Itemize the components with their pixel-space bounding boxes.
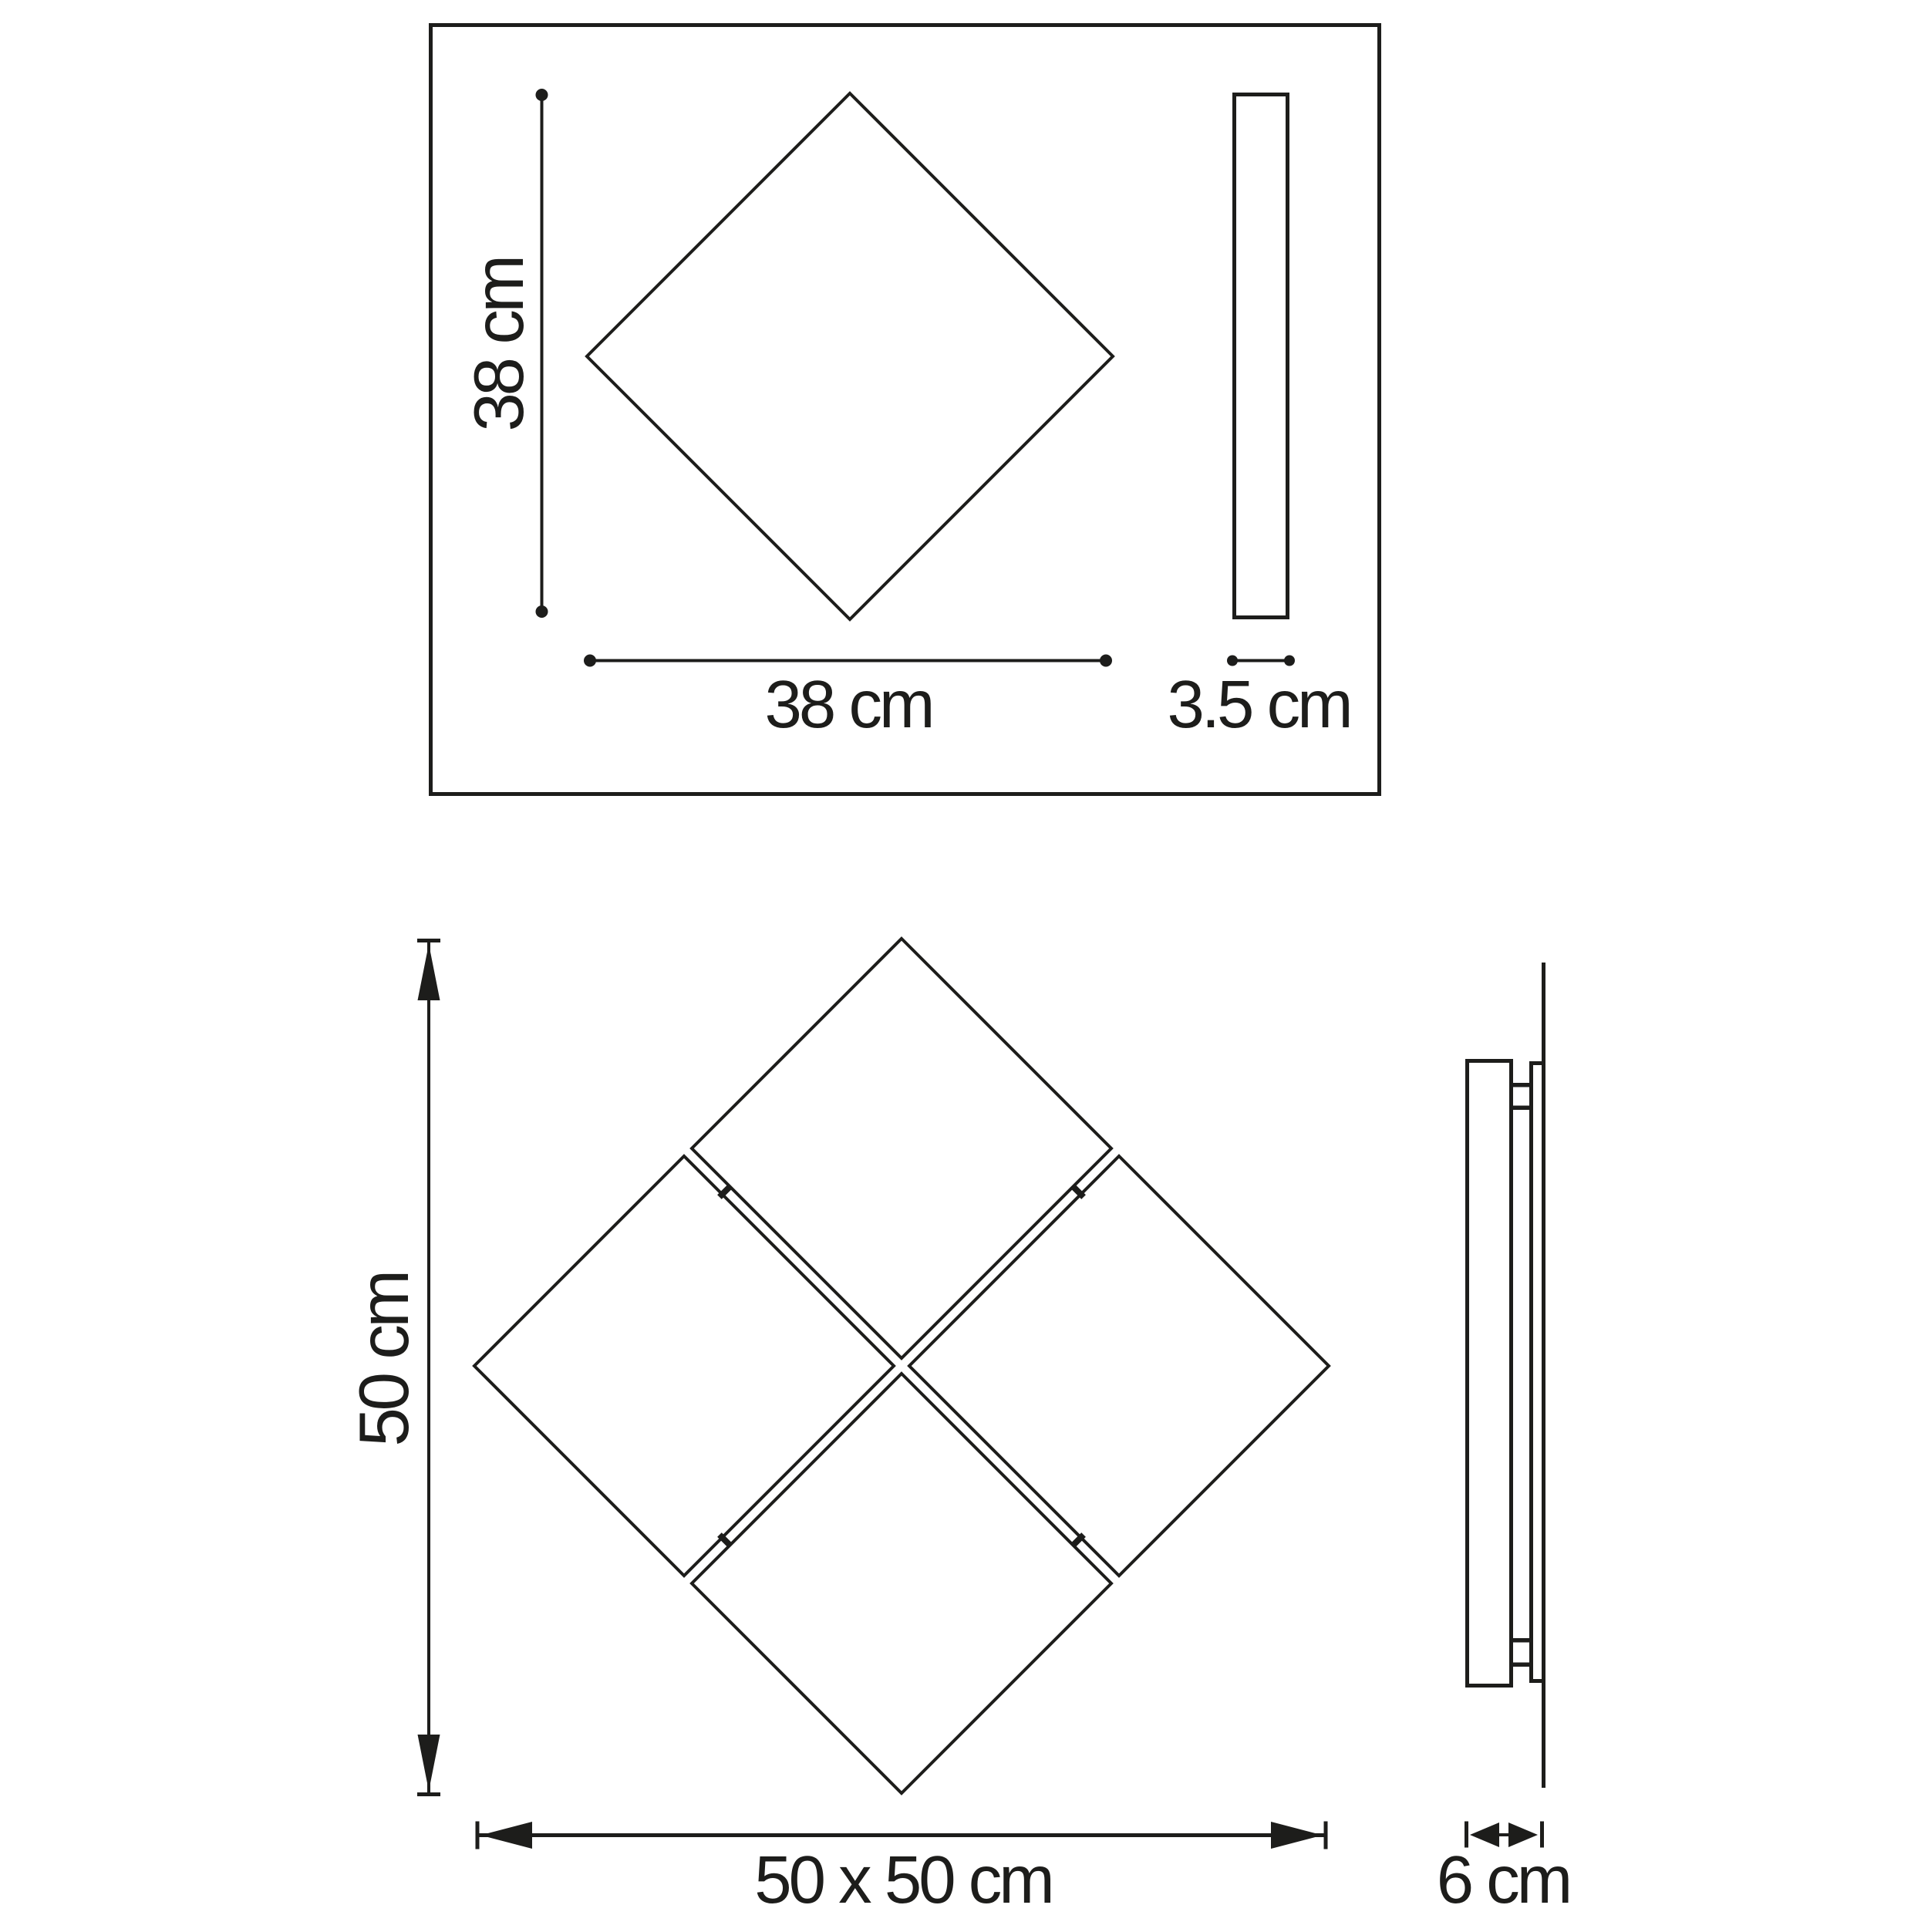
- svg-text:6 cm: 6 cm: [1437, 1843, 1570, 1917]
- svg-text:38 cm: 38 cm: [460, 258, 538, 431]
- svg-text:3.5 cm: 3.5 cm: [1167, 667, 1350, 742]
- svg-text:50 x 50 cm: 50 x 50 cm: [754, 1843, 1052, 1917]
- svg-text:50 cm: 50 cm: [345, 1273, 423, 1446]
- svg-text:38 cm: 38 cm: [765, 667, 932, 742]
